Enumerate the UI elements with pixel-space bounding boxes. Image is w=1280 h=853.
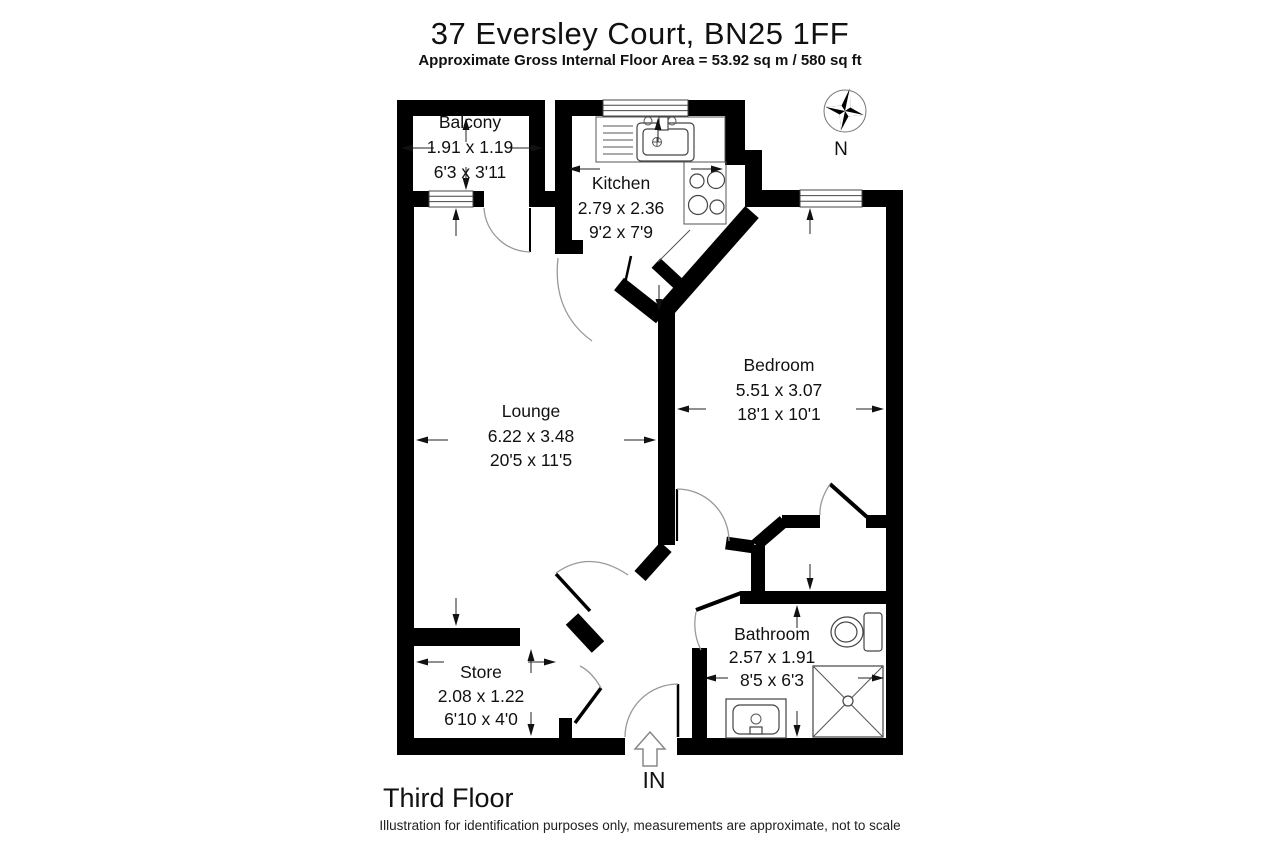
room-imperial: 6'10 x 4'0 — [444, 709, 518, 729]
kitchen-window — [603, 100, 688, 116]
room-label-bedroom: Bedroom 5.51 x 3.07 18'1 x 10'1 — [736, 355, 823, 424]
room-name: Bathroom — [734, 624, 810, 644]
compass-icon: N — [821, 84, 868, 160]
sink-icon — [603, 117, 694, 161]
balcony-window — [429, 191, 473, 207]
room-imperial: 8'5 x 6'3 — [740, 670, 804, 690]
floorplan-page: { "title": "37 Eversley Court, BN25 1FF"… — [0, 0, 1280, 853]
hob-icon — [684, 162, 726, 224]
kitchen-door — [557, 256, 631, 341]
room-label-store: Store 2.08 x 1.22 6'10 x 4'0 — [438, 662, 525, 729]
room-metric: 2.79 x 2.36 — [578, 198, 665, 218]
room-imperial: 20'5 x 11'5 — [490, 450, 572, 470]
room-name: Bedroom — [743, 355, 814, 375]
entrance-door — [625, 684, 678, 737]
room-metric: 2.08 x 1.22 — [438, 686, 525, 706]
room-name: Lounge — [502, 401, 560, 421]
room-imperial: 6'3 x 3'11 — [434, 162, 507, 182]
floor-label: Third Floor — [383, 783, 514, 814]
room-metric: 5.51 x 3.07 — [736, 380, 823, 400]
bedroom-window — [800, 190, 862, 207]
lounge-door — [556, 561, 628, 611]
room-label-balcony: Balcony 1.91 x 1.19 6'3 x 3'11 — [427, 112, 514, 182]
floor-plan-drawing: N IN Balcony 1.91 x 1.19 6'3 x 3'11 Kitc… — [0, 0, 1280, 853]
room-metric: 2.57 x 1.91 — [729, 647, 816, 667]
room-name: Store — [460, 662, 502, 682]
store-door — [575, 666, 601, 723]
room-imperial: 9'2 x 7'9 — [589, 222, 653, 242]
compass-label: N — [834, 139, 848, 160]
room-metric: 6.22 x 3.48 — [488, 426, 575, 446]
room-label-lounge: Lounge 6.22 x 3.48 20'5 x 11'5 — [488, 401, 575, 470]
room-name: Balcony — [439, 112, 502, 132]
disclaimer-text: Illustration for identification purposes… — [0, 818, 1280, 833]
bedroom-door — [677, 489, 729, 541]
cupboard-door — [820, 484, 867, 517]
room-name: Kitchen — [592, 173, 650, 193]
toilet-icon — [831, 613, 882, 651]
entrance-arrow-icon — [635, 732, 665, 766]
entrance-label: IN — [643, 767, 666, 793]
room-imperial: 18'1 x 10'1 — [737, 404, 821, 424]
balcony-door — [484, 208, 530, 252]
room-metric: 1.91 x 1.19 — [427, 137, 514, 157]
room-label-kitchen: Kitchen 2.79 x 2.36 9'2 x 7'9 — [578, 173, 665, 242]
basin-icon — [726, 699, 786, 738]
room-label-bathroom: Bathroom 2.57 x 1.91 8'5 x 6'3 — [729, 624, 816, 690]
